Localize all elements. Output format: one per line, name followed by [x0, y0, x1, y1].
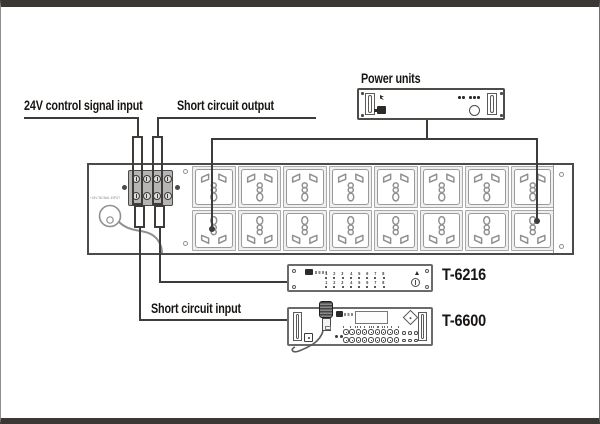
mount-screw-hole: [183, 169, 188, 174]
socket-face: [423, 213, 461, 249]
channel-unit: 5: [358, 272, 361, 279]
channel-knob: [368, 337, 374, 343]
fuse-holder: [411, 278, 420, 287]
power-socket: [329, 210, 373, 252]
power-socket: [283, 210, 327, 252]
socket-face: [241, 213, 279, 249]
mount-screw-hole: [559, 244, 564, 249]
power-socket: [465, 166, 509, 208]
brand-logo: [305, 269, 313, 275]
channel-knob: [381, 329, 387, 335]
power-socket: [238, 166, 282, 208]
socket-face: [195, 169, 233, 205]
terminal-block-mount-dot: [122, 185, 127, 190]
socket-face: [332, 169, 370, 205]
corner-screw-icon: [425, 285, 429, 289]
label-short-circuit-output: Short circuit output: [177, 98, 274, 113]
channel-unit: 6: [366, 272, 369, 279]
corner-screw-icon: [361, 114, 364, 117]
power-socket: [238, 210, 282, 252]
wire-short-output-drop: [157, 117, 159, 137]
diagram-canvas: 24V control signal input Short circuit o…: [0, 0, 600, 424]
channel-knob: [387, 329, 393, 335]
wire-t6600-horizontal: [139, 319, 288, 321]
socket-face: [241, 169, 279, 205]
terminal-screw: [164, 192, 172, 200]
wire-power-units-drop: [426, 119, 428, 139]
socket-grid: [192, 166, 554, 251]
rack-ear-handle: [365, 93, 375, 115]
signal-plug-top-left: [132, 136, 143, 205]
vent-dots: [458, 96, 480, 99]
channel-unit: 8: [382, 272, 385, 279]
lcd-display: [355, 311, 388, 324]
channel-unit: 1: [325, 272, 328, 279]
corner-screw-icon: [500, 114, 503, 117]
microphone-icon: [319, 301, 333, 318]
power-units-device: [357, 88, 505, 120]
t6600-aux-buttons: [401, 329, 419, 344]
aux-button: [414, 339, 418, 343]
socket-face: [514, 213, 552, 249]
channel-knob: [356, 337, 362, 343]
channel-unit: 1: [325, 281, 328, 288]
power-socket: [374, 166, 418, 208]
channel-knob: [394, 329, 400, 335]
aux-button: [408, 331, 412, 335]
channel-unit: 7: [374, 281, 377, 288]
socket-face: [377, 213, 415, 249]
channel-unit: 3: [341, 281, 344, 288]
channel-unit: 2: [333, 272, 336, 279]
channel-knob: [356, 329, 362, 335]
socket-face: [468, 169, 506, 205]
socket-face: [286, 213, 324, 249]
wire-t6216-horizontal: [159, 281, 288, 283]
endcap-divider: [553, 165, 554, 253]
channel-knob: [375, 337, 381, 343]
navigation-diamond-button: [403, 310, 419, 326]
channel-knob: [394, 337, 400, 343]
signal-plug-bottom-right: [154, 205, 165, 228]
power-socket: [420, 210, 464, 252]
aux-button: [402, 339, 406, 343]
terminal-screw: [143, 175, 151, 183]
power-switch: [377, 106, 386, 114]
power-socket: [465, 210, 509, 252]
channel-knob: [349, 337, 355, 343]
channel-knob: [387, 337, 393, 343]
microphone-cable: [287, 325, 347, 365]
wire-socket8-drop: [536, 138, 538, 221]
wire-power-bus: [211, 138, 538, 140]
channel-knob: [349, 329, 355, 335]
socket-face: [423, 169, 461, 205]
t6216-device: 12345678 12345678: [287, 264, 433, 292]
label-t6600: T-6600: [442, 311, 486, 331]
label-t6216: T-6216: [442, 265, 486, 285]
power-socket: [420, 166, 464, 208]
plug-point-dot: [209, 226, 215, 232]
socket-face: [468, 213, 506, 249]
aux-button: [402, 331, 406, 335]
corner-screw-icon: [361, 92, 364, 95]
power-socket: [511, 210, 555, 252]
t6600-knob-row-1: [343, 329, 399, 335]
rack-ear-handle: [418, 312, 427, 341]
plug-point-dot: [534, 218, 540, 224]
channel-knob: [368, 329, 374, 335]
wire-short-output-leader: [157, 117, 316, 119]
wire-24v-drop: [137, 117, 139, 137]
aux-button: [408, 339, 412, 343]
channel-unit: 6: [366, 281, 369, 288]
socket-face: [514, 169, 552, 205]
channel-knob: [362, 337, 368, 343]
signal-plug-top-right: [152, 136, 163, 205]
t6216-channel-row-2: 12345678: [325, 281, 385, 288]
panel-print-text: +24V SIGNAL INPUT: [90, 196, 126, 200]
channel-unit: 3: [341, 272, 344, 279]
t6216-channel-row-1: 12345678: [325, 272, 385, 279]
aux-button: [414, 331, 418, 335]
channel-unit: 4: [350, 281, 353, 288]
ground-icon: [415, 271, 419, 275]
terminal-block-mount-dot: [175, 185, 180, 190]
terminal-screw: [164, 175, 172, 183]
mount-screw-hole: [183, 241, 188, 246]
power-indicator-icon: [380, 95, 384, 100]
channel-unit: 2: [333, 281, 336, 288]
channel-unit: 8: [382, 281, 385, 288]
power-button: [469, 105, 480, 116]
corner-screw-icon: [500, 92, 503, 95]
label-short-circuit-input: Short circuit input: [151, 301, 241, 316]
corner-screw-icon: [292, 285, 296, 289]
wire-t6216-vertical: [159, 227, 161, 283]
wire-24v-leader: [24, 117, 138, 119]
terminal-screw: [143, 192, 151, 200]
mount-screw-hole: [559, 172, 564, 177]
power-socket: [511, 166, 555, 208]
wire-socket1-drop: [211, 138, 213, 229]
socket-face: [286, 169, 324, 205]
power-socket: [192, 166, 236, 208]
rack-ear-handle: [487, 93, 497, 115]
label-power-units: Power units: [361, 71, 420, 86]
wire-short-input-vertical: [139, 227, 141, 320]
t6600-knob-row-2: [343, 337, 399, 343]
socket-face: [377, 169, 415, 205]
channel-unit: 5: [358, 281, 361, 288]
corner-screw-icon: [292, 269, 296, 273]
power-socket: [374, 210, 418, 252]
signal-plug-bottom-left: [134, 205, 145, 228]
corner-screw-icon: [425, 269, 429, 273]
channel-unit: 4: [350, 272, 353, 279]
t6600-ticks: [343, 326, 399, 328]
brand-logo: [336, 311, 343, 317]
channel-knob: [375, 329, 381, 335]
brand-logo-text: [344, 313, 354, 316]
power-socket: [329, 166, 373, 208]
label-24v-control-signal-input: 24V control signal input: [24, 98, 143, 113]
channel-unit: 7: [374, 272, 377, 279]
power-socket: [283, 166, 327, 208]
channel-knob: [381, 337, 387, 343]
channel-knob: [362, 329, 368, 335]
socket-face: [332, 213, 370, 249]
